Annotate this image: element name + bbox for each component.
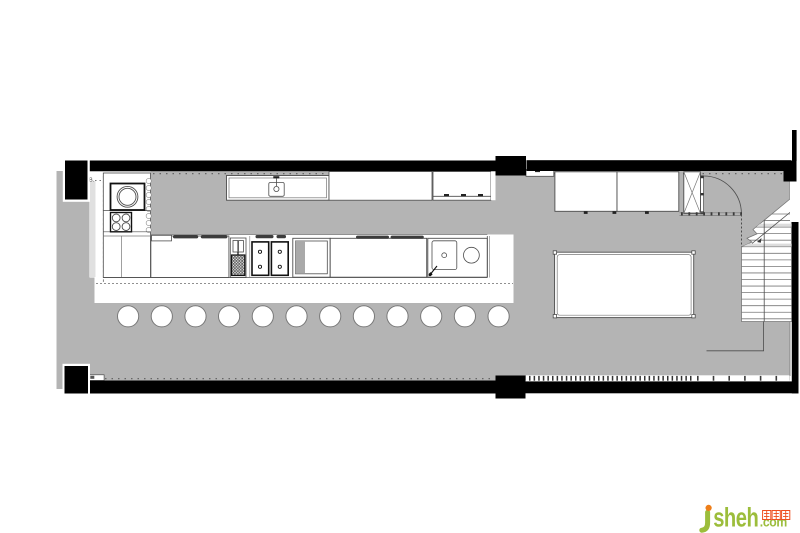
- svg-text:sheh: sheh: [713, 503, 758, 532]
- svg-text:B.: B.: [89, 178, 95, 184]
- svg-text:.com: .com: [760, 514, 787, 530]
